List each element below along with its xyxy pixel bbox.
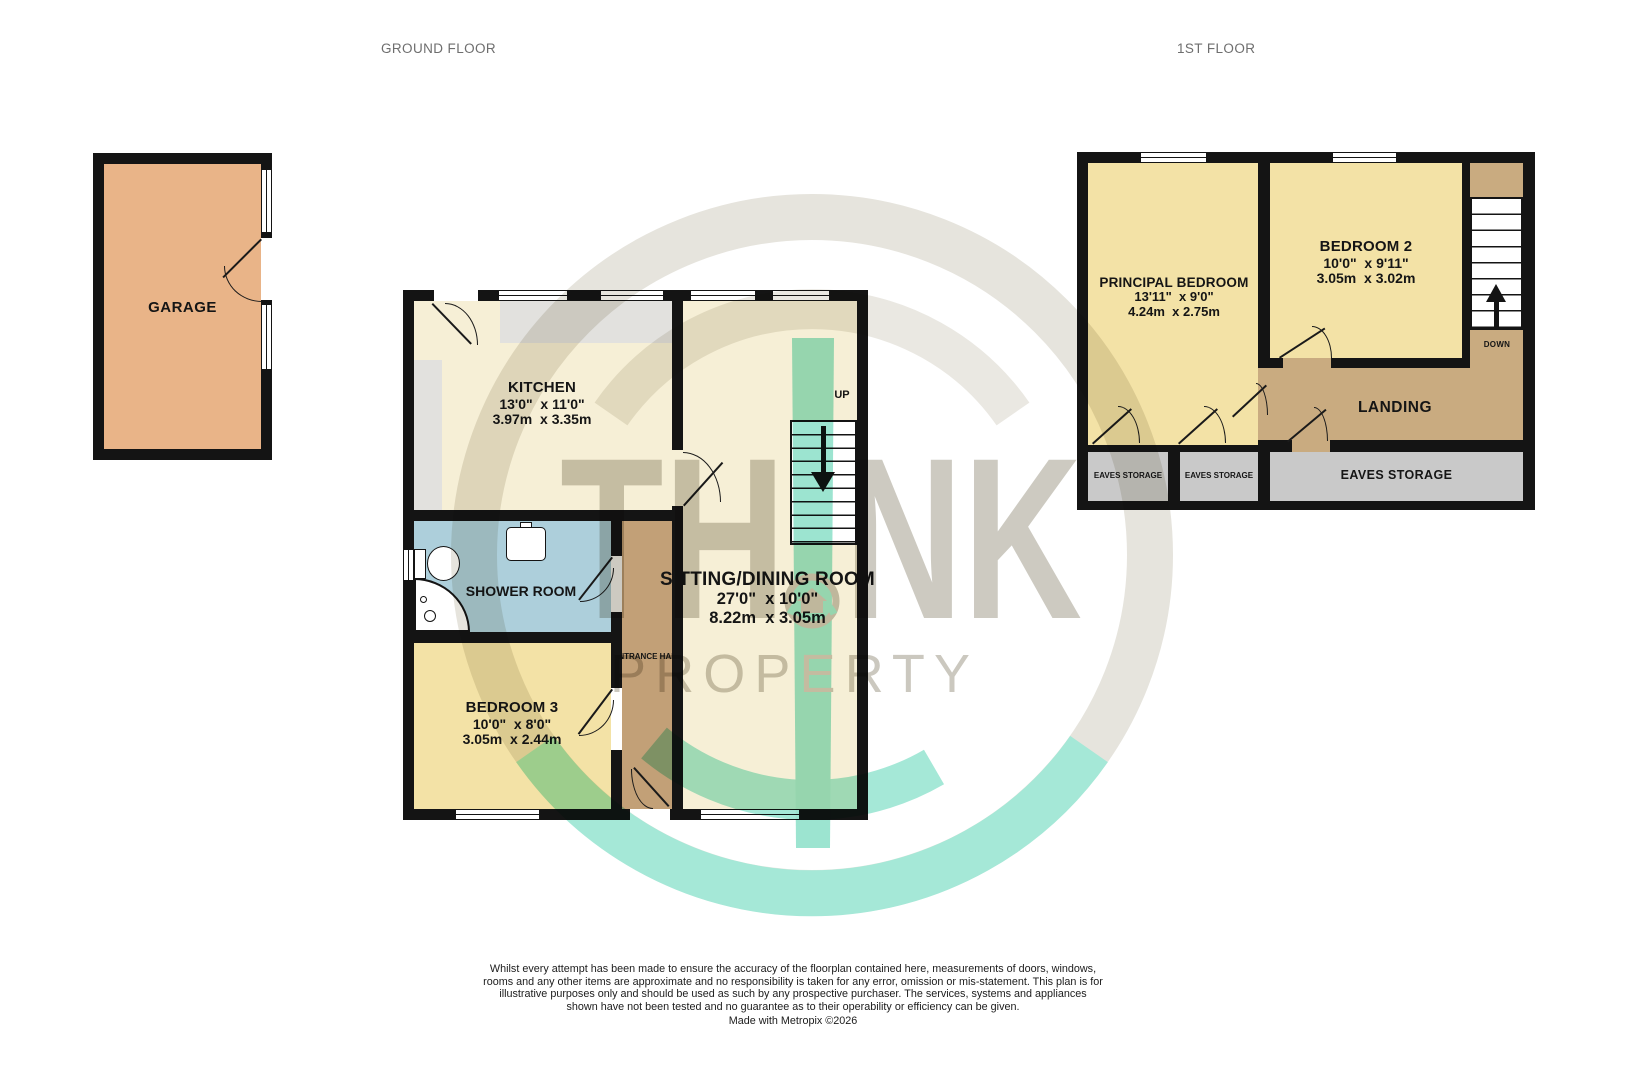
bedroom3-window [455,809,540,820]
shower-knob-icon [424,610,436,622]
principal-bedroom-metric: 4.24m x 2.75m [1128,305,1220,320]
kitchen-window-2 [600,290,664,301]
sink-icon [506,527,546,561]
shower-door-gap [611,556,622,612]
bedroom2-window [1332,152,1397,163]
landing-label: LANDING [1320,399,1470,417]
landing-door-gap [1292,440,1330,452]
watermark-think-right: NK [844,410,1082,667]
bedroom3-name: BEDROOM 3 [466,700,559,717]
kitchen-imperial: 13'0" x 11'0" [499,397,584,413]
toilet-icon [414,549,426,579]
stairs-down-arrow [1494,300,1499,330]
front-door-gap [630,809,670,820]
sitting-dining-name: SITTING/DINING ROOM [660,569,875,590]
eaves-storage-3-label: EAVES STORAGE [1270,468,1523,482]
disclaimer-text: Whilst every attempt has been made to en… [483,963,1103,1014]
bedroom2-metric: 3.05m x 3.02m [1317,271,1416,287]
ground-floor-title: GROUND FLOOR [381,41,496,56]
kitchen-label: KITCHEN 13'0" x 11'0" 3.97m x 3.35m [427,380,657,428]
garage-window-bottom [261,304,272,370]
stairs-up-arrowhead [811,472,835,492]
bedroom3-imperial: 10'0" x 8'0" [473,717,551,733]
principal-bedroom-window [1140,152,1207,163]
sitting-window-bottom [700,809,800,820]
principal-bedroom-label: PRINCIPAL BEDROOM 13'11" x 9'0" 4.24m x … [1074,272,1274,322]
bedroom3-label: BEDROOM 3 10'0" x 8'0" 3.05m x 2.44m [412,700,612,748]
sitting-window-1 [690,290,756,301]
kitchen-counter-top [500,301,672,343]
sitting-dining-label: SITTING/DINING ROOM 27'0" x 10'0" 8.22m … [650,572,885,624]
bedroom2-name: BEDROOM 2 [1320,239,1413,256]
eaves-storage-2-label: EAVES STORAGE [1180,471,1258,480]
entrance-hall-floor [622,521,672,809]
toilet-bowl-icon [427,546,460,581]
stairs-up-label: UP [820,389,864,401]
stair-top-landing [1470,163,1523,197]
sitting-dining-imperial: 27'0" x 10'0" [717,590,818,608]
bedroom2-door-gap [1283,358,1331,368]
kitchen-name: KITCHEN [508,380,576,397]
kitchen-metric: 3.97m x 3.35m [493,412,592,428]
shower-room-label: SHOWER ROOM [441,583,601,599]
kitchen-window-1 [498,290,568,301]
garage-door-gap [261,238,272,300]
principal-bedroom-imperial: 13'11" x 9'0" [1134,290,1213,305]
stairs-up-arrow [821,426,826,474]
bedroom3-door-gap [611,688,622,750]
floorplan-canvas: GROUND FLOOR 1ST FLOOR GARAGE UP [0,0,1628,1080]
sitting-dining-metric: 8.22m x 3.05m [709,609,826,627]
entrance-hall-label: ENTRANCE HALL [600,652,694,661]
disclaimer-block: Whilst every attempt has been made to en… [483,963,1103,1028]
garage-window-top [261,169,272,233]
eaves-storage-1-label: EAVES STORAGE [1088,471,1168,480]
stairs-down-arrowhead [1486,284,1506,302]
bedroom3-metric: 3.05m x 2.44m [463,732,562,748]
first-floor-title: 1ST FLOOR [1177,41,1255,56]
kitchen-door-gap [434,290,478,301]
shower-drain-icon [420,596,427,603]
garage-label: GARAGE [104,299,261,316]
sitting-window-2 [772,290,830,301]
kitchen-sitting-door-gap [672,450,683,506]
metropix-credit: Made with Metropix ©2026 [483,1015,1103,1028]
principal-bedroom-name: PRINCIPAL BEDROOM [1099,275,1248,290]
bedroom2-imperial: 10'0" x 9'11" [1323,256,1408,272]
shower-window [403,549,414,581]
stairs-down-label: DOWN [1472,340,1522,349]
sitting-room-floor [683,301,857,809]
bedroom2-label: BEDROOM 2 10'0" x 9'11" 3.05m x 3.02m [1266,238,1466,288]
